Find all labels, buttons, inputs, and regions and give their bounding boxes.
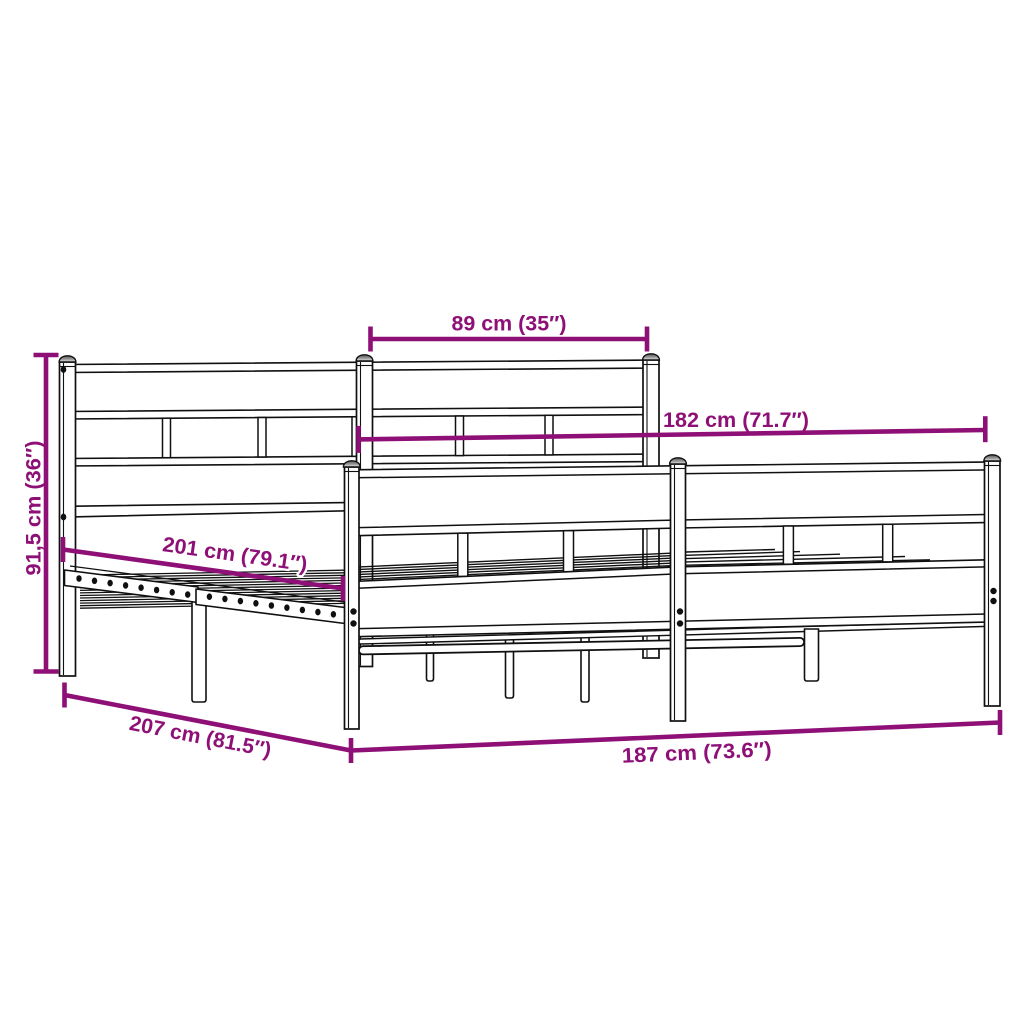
svg-text:182 cm (71.7″): 182 cm (71.7″)	[663, 409, 809, 432]
svg-text:89 cm (35″): 89 cm (35″)	[452, 313, 567, 336]
svg-text:91,5 cm (36″): 91,5 cm (36″)	[23, 441, 46, 576]
